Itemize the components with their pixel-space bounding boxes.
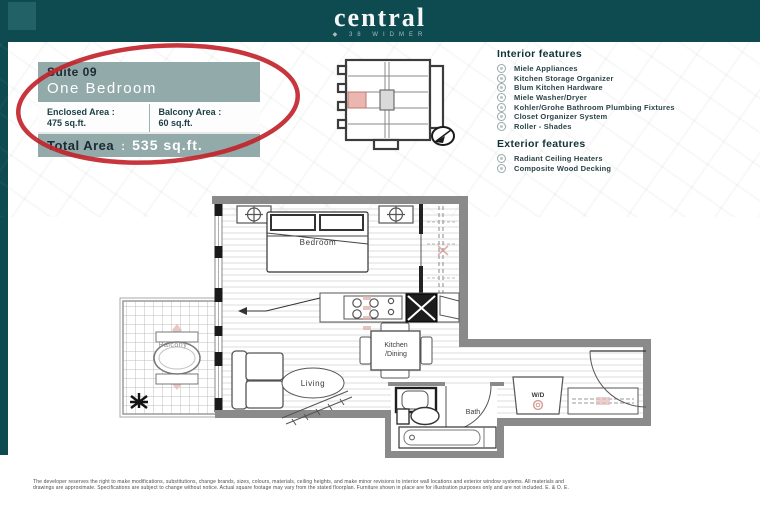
feature-bullet-icon bbox=[497, 64, 506, 73]
floorplan-drawing: Balcony bbox=[115, 190, 655, 465]
feature-bullet-icon bbox=[497, 83, 506, 92]
list-item: Kohler/Grohe Bathroom Plumbing Fixtures bbox=[497, 102, 747, 112]
keyplan-unit-highlight bbox=[348, 92, 366, 108]
feature-bullet-icon bbox=[497, 93, 506, 102]
disclaimer: The developer reserves the right to make… bbox=[33, 479, 735, 491]
feature-label: Kitchen Storage Organizer bbox=[514, 74, 614, 83]
compass-icon bbox=[432, 127, 454, 145]
feature-label: Miele Washer/Dryer bbox=[514, 93, 587, 102]
living-label: Living bbox=[301, 379, 326, 388]
feature-label: Composite Wood Decking bbox=[514, 164, 611, 173]
header-bar: central ◆ 38 WIDMER bbox=[0, 0, 760, 42]
keyplan-core bbox=[380, 90, 394, 110]
feature-label: Kohler/Grohe Bathroom Plumbing Fixtures bbox=[514, 103, 675, 112]
feature-bullet-icon bbox=[497, 103, 506, 112]
living-area: Living bbox=[282, 368, 344, 398]
feature-bullet-icon bbox=[497, 122, 506, 131]
list-item: Kitchen Storage Organizer bbox=[497, 74, 747, 84]
sofa bbox=[232, 351, 283, 409]
washer-dryer-closet: W/D bbox=[513, 377, 563, 414]
feature-bullet-icon bbox=[497, 154, 506, 163]
feature-bullet-icon bbox=[497, 164, 506, 173]
feature-label: Blum Kitchen Hardware bbox=[514, 83, 603, 92]
brand-logo: central bbox=[0, 3, 760, 33]
left-edge-strip bbox=[0, 42, 8, 455]
list-item: Miele Appliances bbox=[497, 64, 747, 74]
list-item: Composite Wood Decking bbox=[497, 164, 747, 174]
balcony-bench bbox=[156, 332, 198, 342]
list-item: Closet Organizer System bbox=[497, 112, 747, 122]
bathtub-icon bbox=[399, 427, 496, 448]
feature-label: Closet Organizer System bbox=[514, 112, 607, 121]
list-item: Roller - Shades bbox=[497, 122, 747, 132]
dining-label: /Dining bbox=[385, 351, 407, 358]
brand-tagline: ◆ 38 WIDMER bbox=[0, 31, 760, 38]
bed: Bedroom bbox=[267, 212, 368, 272]
closet-mark bbox=[596, 397, 610, 405]
kitchen-label: Kitchen bbox=[384, 342, 407, 349]
disclaimer-line: drawings are approximate. Specifications… bbox=[33, 485, 735, 491]
balcony-bench bbox=[156, 374, 198, 384]
feature-label: Miele Appliances bbox=[514, 64, 578, 73]
bedroom-label: Bedroom bbox=[300, 238, 337, 247]
red-circle-annotation bbox=[10, 40, 306, 174]
bathroom: Bath bbox=[391, 386, 497, 451]
list-item: Miele Washer/Dryer bbox=[497, 93, 747, 103]
brand-tagline-text: 38 WIDMER bbox=[349, 32, 427, 38]
floorplan-sheet: central ◆ 38 WIDMER Suite 09 One Bedroom… bbox=[0, 0, 760, 505]
bath-label: Bath bbox=[466, 409, 481, 416]
window-wall bbox=[215, 204, 223, 412]
toilet-icon bbox=[397, 408, 439, 425]
keyplan bbox=[328, 52, 462, 154]
feature-bullet-icon bbox=[497, 74, 506, 83]
feature-label: Radiant Ceiling Heaters bbox=[514, 154, 603, 163]
feature-bullet-icon bbox=[497, 112, 506, 121]
entry-closet bbox=[568, 388, 638, 414]
balcony-area: Balcony bbox=[120, 298, 219, 417]
diamond-bullet-icon: ◆ bbox=[333, 32, 343, 38]
features-panel: Interior features Miele Appliances Kitch… bbox=[497, 48, 747, 173]
list-item: Blum Kitchen Hardware bbox=[497, 83, 747, 93]
exterior-features-title: Exterior features bbox=[497, 138, 747, 150]
wd-label: W/D bbox=[532, 392, 545, 399]
interior-features-title: Interior features bbox=[497, 48, 747, 60]
feature-label: Roller - Shades bbox=[514, 122, 572, 131]
balcony-label: Balcony bbox=[159, 342, 187, 349]
list-item: Radiant Ceiling Heaters bbox=[497, 154, 747, 164]
